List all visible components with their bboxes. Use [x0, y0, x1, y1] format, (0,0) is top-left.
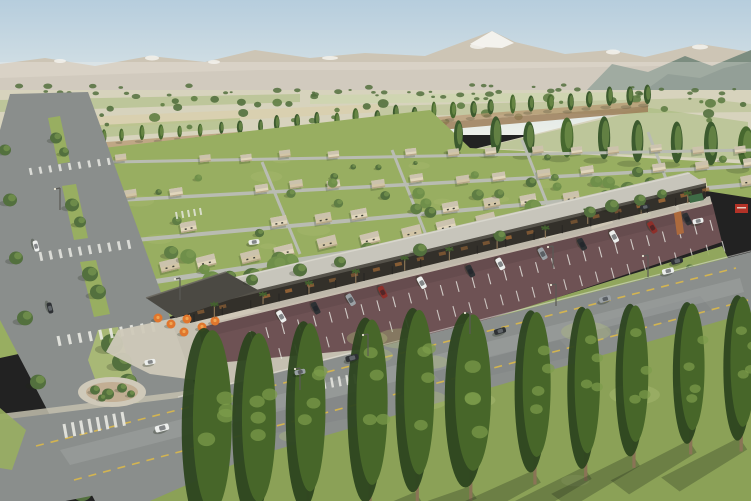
treeline: [348, 89, 351, 91]
poplar-row-far-highlight: [239, 122, 243, 131]
treeline: [574, 87, 581, 91]
highway-poplar-leaf-highlight: [538, 346, 551, 356]
residential-tree-highlight: [352, 165, 355, 168]
monument-sign-text: [737, 207, 746, 209]
residential-tree-highlight: [429, 208, 436, 214]
house: [113, 154, 127, 165]
umbrella-top: [156, 316, 159, 319]
poplar-row-far-shadow: [621, 105, 632, 109]
street-lamp-head: [362, 334, 364, 336]
crosswalk: [339, 376, 341, 386]
treeline: [43, 90, 48, 93]
residential-tree-highlight: [424, 199, 430, 204]
highway-poplar-leaf-highlight: [307, 398, 321, 409]
treeline: [547, 89, 555, 94]
treeline: [688, 98, 691, 100]
highway-poplar-leaf-highlight: [585, 335, 596, 344]
highway-poplar-leaf-highlight: [465, 393, 481, 406]
treeline: [456, 92, 464, 97]
treeline: [719, 91, 726, 95]
highway-poplar-leaf-highlight: [249, 396, 264, 408]
treeline: [93, 91, 99, 95]
orchard-trees: [238, 109, 248, 117]
crosswalk: [194, 209, 195, 216]
crosswalk: [100, 330, 102, 340]
crosswalk: [59, 164, 60, 171]
highway-poplar-leaf-highlight: [312, 370, 326, 381]
snow-patch: [145, 56, 159, 61]
crosswalk: [79, 162, 80, 169]
treeline: [485, 91, 494, 96]
orchard-trees: [457, 102, 465, 109]
median-tree-highlight: [54, 133, 61, 139]
crosswalk: [128, 240, 130, 249]
treeline: [365, 85, 373, 90]
highway-poplar-leaf-highlight: [641, 366, 652, 375]
poplar-row-far-highlight: [452, 103, 456, 114]
treeline: [167, 94, 172, 97]
umbrella-top: [200, 325, 203, 328]
poplar-row-northeast-highlight: [635, 124, 642, 153]
snow-patch: [606, 50, 620, 55]
strip-back-tree-highlight: [588, 207, 595, 213]
street-lamp-head: [642, 255, 644, 257]
highway-poplar-leaf-highlight: [250, 429, 265, 441]
poplar-row-far-shadow: [581, 107, 590, 110]
orchard-trees: [378, 99, 389, 108]
crosswalk: [40, 167, 41, 174]
orchard-trees: [173, 104, 182, 111]
poplar-row-far-highlight: [160, 126, 163, 136]
highway-poplar-leaf-highlight: [684, 362, 695, 371]
poplar-row-far-highlight: [570, 95, 574, 107]
poplar-row-far-shadow: [504, 114, 515, 117]
treeline: [474, 97, 480, 100]
treeline: [469, 83, 475, 87]
house: [690, 146, 704, 157]
orchard-trees: [160, 103, 164, 106]
orchard-trees: [149, 113, 160, 122]
street-lamp-head: [54, 188, 56, 190]
poplar-row-northeast-highlight: [527, 125, 534, 148]
treeline: [375, 94, 379, 96]
highway-poplar-leaf-highlight: [421, 372, 435, 383]
poplar-row-far-highlight: [221, 123, 224, 131]
treeline: [555, 88, 561, 92]
poplar-row-far-shadow: [135, 140, 143, 143]
residential-tree-highlight: [158, 190, 162, 193]
house: [569, 146, 583, 157]
island-shrub-highlight: [101, 395, 105, 399]
poplar-row-far-highlight: [512, 96, 515, 109]
crosswalk: [110, 328, 112, 338]
poplar-row-far-highlight: [629, 88, 633, 101]
crosswalk: [69, 248, 71, 257]
strip-back-tree-highlight: [498, 231, 505, 237]
residential-tree-highlight: [337, 199, 342, 204]
umbrella-top: [182, 330, 185, 333]
median-tree-highlight: [96, 286, 105, 294]
highway-poplar-leaf-highlight: [581, 380, 592, 389]
highway-poplar-leaf-highlight: [592, 353, 603, 362]
highway-poplar-leaf-highlight: [591, 382, 602, 391]
treeline: [471, 93, 475, 95]
poplar-row-northeast-highlight: [602, 120, 609, 149]
residential-tree-highlight: [530, 178, 536, 183]
treeline: [732, 88, 736, 90]
crosswalk: [79, 333, 81, 343]
house: [605, 146, 619, 157]
orchard-trees: [99, 113, 104, 117]
crosswalk: [89, 331, 91, 341]
snow-patch: [692, 45, 708, 50]
orchard-trees: [107, 106, 114, 112]
umbrella-top: [213, 319, 216, 322]
street-lamp-head: [464, 312, 466, 314]
poplar-row-far-shadow: [466, 117, 475, 120]
highway-poplar-leaf-highlight: [690, 384, 701, 393]
crosswalk: [58, 336, 60, 346]
orchard-trees: [703, 109, 714, 118]
house: [648, 144, 662, 155]
treeline: [381, 90, 388, 94]
treeline: [89, 84, 96, 88]
treeline: [334, 89, 342, 94]
crosswalk: [69, 163, 70, 170]
strip-back-tree-highlight: [418, 244, 426, 251]
house: [238, 154, 252, 165]
poplar-row-far-highlight: [316, 113, 319, 123]
crosswalk: [79, 247, 81, 256]
treeline: [481, 84, 487, 87]
house: [403, 148, 417, 159]
treeline: [691, 88, 699, 93]
orchard-trees: [705, 99, 716, 108]
treeline: [659, 88, 664, 91]
treeline: [273, 88, 282, 93]
highway-poplar-leaf-highlight: [251, 412, 266, 424]
highway-poplar-leaf-highlight: [472, 426, 488, 439]
poplar-row-far-highlight: [276, 117, 279, 128]
residential-tree-highlight: [377, 165, 380, 168]
poplar-row-far-highlight: [646, 87, 650, 100]
highway-poplar-leaf-highlight: [697, 336, 708, 345]
orchard-trees: [559, 101, 563, 104]
highway-poplar-leaf-highlight: [363, 414, 377, 425]
treeline: [635, 91, 642, 95]
strip-back-tree-highlight: [250, 275, 257, 281]
island-shrub-highlight: [130, 391, 134, 395]
treeline: [440, 95, 446, 99]
crosswalk: [68, 334, 70, 344]
treeline: [43, 83, 52, 88]
umbrella-top: [169, 322, 172, 325]
treeline: [483, 97, 488, 100]
treeline: [371, 91, 376, 94]
orchard-trees: [237, 99, 246, 106]
highway-poplar-crown: [356, 320, 387, 485]
highway-poplar-leaf-highlight: [686, 394, 697, 403]
highway-poplar-leaf-highlight: [422, 343, 436, 354]
residential-tree-highlight: [636, 168, 642, 174]
street-lamp-head: [547, 246, 549, 248]
left-edge-tree-highlight: [14, 252, 22, 259]
crosswalk: [40, 252, 42, 261]
highway-poplar-leaf-highlight: [465, 360, 481, 373]
median-tree-highlight: [70, 199, 78, 206]
aerial-rendering: [0, 0, 751, 501]
treeline: [561, 83, 567, 86]
highway-poplar-leaf-highlight: [639, 390, 650, 399]
poplar-row-far-shadow: [600, 106, 611, 110]
treeline: [223, 91, 228, 94]
poplar-row-far-highlight: [472, 103, 476, 114]
poplar-row-far-shadow: [638, 104, 649, 108]
left-edge-tree-highlight: [36, 376, 45, 384]
residential-tree-highlight: [203, 265, 209, 270]
residential-tree-highlight: [258, 229, 263, 234]
residential-tree-highlight: [290, 190, 295, 195]
median-tree-highlight: [63, 148, 69, 153]
strip-back-tree-highlight: [298, 264, 306, 271]
crosswalk: [50, 166, 51, 173]
poplar-row-far-shadow: [115, 142, 122, 144]
highway-poplar-leaf-highlight: [629, 395, 640, 404]
poplar-row-far-shadow: [523, 111, 532, 114]
crosswalk: [346, 375, 348, 385]
orchard-trees: [740, 102, 746, 107]
residential-tree-highlight: [556, 183, 561, 188]
orchard-trees: [172, 98, 179, 104]
poplar-row-far-highlight: [199, 125, 202, 134]
crosswalk: [331, 378, 333, 388]
crosswalk: [99, 244, 101, 253]
highway-poplar-leaf-highlight: [532, 386, 545, 396]
median-tree-highlight: [88, 268, 97, 276]
treeline: [132, 94, 141, 99]
crosswalk: [60, 249, 62, 258]
island-shrub-highlight: [121, 384, 127, 389]
poplar-row-far-highlight: [530, 97, 534, 108]
treeline: [185, 84, 192, 88]
house: [326, 150, 340, 161]
poplar-row-far-shadow: [543, 110, 552, 114]
residential-tree-highlight: [287, 255, 297, 264]
residential-tree-highlight: [415, 204, 421, 210]
island-shrub-highlight: [106, 389, 113, 395]
highway-poplar-leaf-highlight: [414, 420, 428, 431]
residential-tree-highlight: [607, 177, 614, 183]
highway-poplar-crown: [523, 312, 551, 457]
residential-tree-highlight: [384, 192, 389, 197]
orchard-trees: [254, 102, 261, 108]
poplar-row-far-highlight: [179, 127, 182, 135]
island-shrub-highlight: [94, 386, 100, 391]
median-tree-highlight: [78, 217, 85, 223]
residential-tree-highlight: [476, 190, 483, 196]
strip-back-tree-highlight: [338, 257, 345, 263]
left-edge-tree-highlight: [23, 312, 32, 320]
snow-patch: [470, 43, 486, 49]
orchard-trees: [210, 96, 219, 103]
poplar-row-far-highlight: [588, 93, 592, 104]
poplar-row-northeast-highlight: [675, 126, 682, 154]
highway-poplar-leaf-highlight: [542, 364, 555, 374]
residential-tree-highlight: [331, 179, 336, 184]
strip-back-tree-highlight: [661, 190, 667, 195]
treeline: [407, 91, 411, 93]
street-lamp-head: [550, 284, 552, 286]
crosswalk: [182, 211, 183, 218]
orchard-trees: [285, 101, 292, 107]
residential-tree-highlight: [546, 155, 550, 158]
left-edge-tree-highlight: [8, 194, 16, 201]
car-cabin: [252, 240, 257, 244]
residential-tree-highlight: [554, 174, 558, 178]
crosswalk: [118, 241, 120, 250]
orchard-trees: [363, 103, 371, 109]
house: [446, 148, 460, 159]
treeline: [489, 85, 494, 88]
poplar-row-far-highlight: [549, 96, 553, 107]
residential-tree-highlight: [474, 172, 478, 176]
poplar-row-northeast-highlight: [457, 123, 462, 144]
treeline: [311, 94, 316, 97]
house: [277, 150, 291, 161]
rendering-viewport: [0, 0, 751, 501]
poplar-row-northeast-highlight: [494, 120, 501, 146]
residential-tree-highlight: [197, 175, 201, 179]
treeline: [532, 86, 536, 88]
crosswalk: [188, 210, 189, 217]
residential-tree-highlight: [169, 247, 177, 254]
treeline: [118, 86, 123, 89]
left-edge-tree-highlight: [3, 145, 10, 151]
poplar-row-far-highlight: [608, 88, 612, 101]
snow-patch: [322, 56, 338, 60]
residential-tree-highlight: [186, 250, 195, 258]
treeline: [124, 92, 129, 95]
crosswalk: [108, 158, 109, 165]
street-lamp-head: [294, 368, 296, 370]
residential-tree-highlight: [415, 161, 417, 163]
crosswalk: [30, 168, 31, 175]
orchard-trees: [105, 123, 110, 127]
highway-poplar-leaf-highlight: [217, 392, 234, 406]
street-lamp-head: [174, 278, 176, 280]
strip-back-tree-highlight: [638, 195, 645, 201]
highway-poplar-leaf-highlight: [262, 389, 277, 401]
treeline: [416, 91, 424, 96]
house: [483, 147, 497, 158]
crosswalk: [108, 243, 110, 252]
strip-back-tree-highlight: [610, 200, 618, 207]
treeline: [230, 91, 233, 93]
treeline: [15, 84, 23, 89]
orchard-trees: [334, 108, 339, 112]
highway-poplar-leaf-highlight: [630, 328, 641, 337]
crosswalk: [200, 208, 201, 215]
treeline: [312, 91, 315, 93]
poplar-row-far-shadow: [445, 118, 454, 121]
crosswalk: [89, 161, 90, 168]
crosswalk: [89, 245, 91, 254]
crosswalk: [98, 159, 99, 166]
highway-poplar-leaf-highlight: [298, 414, 312, 425]
residential-tree-highlight: [595, 177, 602, 183]
orchard-trees: [661, 106, 668, 112]
treeline: [687, 92, 693, 95]
house: [530, 146, 544, 157]
highway-poplar-leaf-highlight: [370, 370, 384, 381]
highway-poplar-crown: [404, 310, 434, 475]
orchard-trees: [699, 100, 703, 103]
residential-tree-highlight: [722, 156, 726, 160]
treeline: [294, 88, 300, 92]
highway-poplar-leaf-highlight: [376, 414, 390, 425]
poplar-row-far-shadow: [483, 114, 492, 117]
treeline: [495, 90, 502, 94]
poplar-row-northeast-highlight: [565, 121, 573, 148]
highway-poplar-leaf-highlight: [364, 347, 378, 358]
orchard-trees: [272, 99, 282, 107]
treeline: [429, 91, 433, 93]
residential-tree-highlight: [498, 190, 504, 195]
poplar-row-far-shadow: [562, 110, 572, 113]
orchard-trees: [187, 125, 193, 130]
umbrella-top: [185, 317, 188, 320]
poplar-row-far-highlight: [489, 101, 493, 111]
residential-tree-highlight: [333, 174, 337, 178]
orchard-trees: [191, 96, 198, 102]
treeline: [431, 96, 435, 98]
orchard-trees: [718, 97, 726, 103]
poplar-row-far-highlight: [141, 127, 144, 137]
highway-poplar-leaf-highlight: [530, 404, 543, 414]
crosswalk: [50, 251, 52, 260]
highway-poplar-leaf-highlight: [736, 326, 747, 335]
lawn-patch: [408, 162, 429, 169]
highway-poplar-leaf-highlight: [198, 432, 215, 446]
poplar-row-far-highlight: [260, 121, 263, 130]
poplar-row-far-highlight: [296, 115, 300, 125]
poplar-row-far-highlight: [121, 130, 124, 139]
crosswalk: [176, 212, 177, 219]
house: [197, 154, 211, 165]
residential-tree-highlight: [417, 188, 424, 194]
house: [732, 146, 746, 157]
